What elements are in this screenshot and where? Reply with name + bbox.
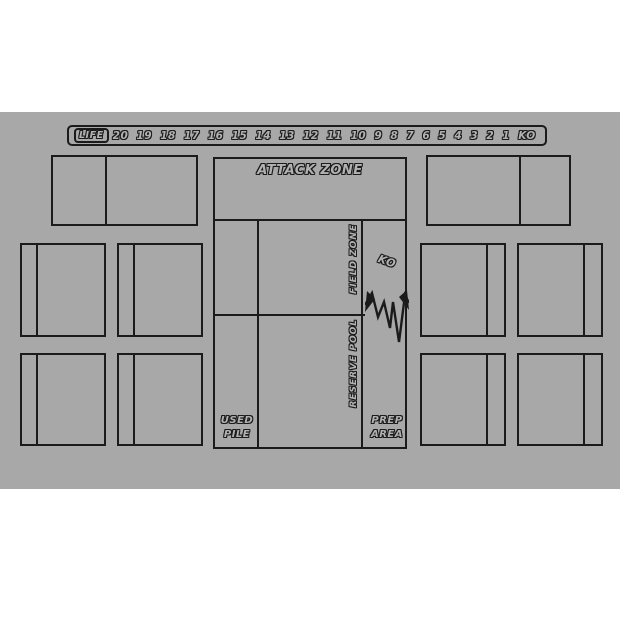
field-reserve-divider <box>215 314 365 316</box>
life-cell-14[interactable]: 14 <box>255 130 271 142</box>
life-label-text: LIFE <box>79 130 104 141</box>
life-cell-10[interactable]: 10 <box>351 130 367 142</box>
life-track: LIFE 20 19 18 17 16 15 14 13 12 11 10 9 … <box>67 125 547 146</box>
left-card-slot-4[interactable] <box>117 353 203 446</box>
life-cell-1[interactable]: 1 <box>502 130 510 142</box>
slot-strip-line <box>133 355 135 444</box>
slot-strip-line <box>36 245 38 335</box>
life-cell-12[interactable]: 12 <box>303 130 319 142</box>
left-top-slot-large[interactable] <box>105 157 196 224</box>
right-top-double-slot-row <box>428 157 569 224</box>
slot-strip-line <box>133 245 135 335</box>
attack-zone-label: ATTACK ZONE <box>257 163 362 178</box>
right-card-slot-1[interactable] <box>420 243 506 337</box>
left-top-double-slot[interactable] <box>51 155 198 226</box>
attack-zone[interactable]: ATTACK ZONE <box>215 159 405 221</box>
right-card-slot-3[interactable] <box>420 353 506 446</box>
field-zone-label: FIELD ZONE <box>349 224 359 294</box>
life-cell-6[interactable]: 6 <box>422 130 430 142</box>
life-cell-15[interactable]: 15 <box>232 130 248 142</box>
center-play-area: ATTACK ZONE FIELD ZONE RESERVE POOL KO U… <box>213 157 407 449</box>
left-card-slot-1[interactable] <box>20 243 106 337</box>
life-cell-13[interactable]: 13 <box>279 130 295 142</box>
slot-strip-line <box>486 355 488 444</box>
slot-strip-line <box>583 245 585 335</box>
prep-area-label: PREP AREA <box>365 414 409 442</box>
explosion-burst-icon <box>365 287 409 349</box>
slot-strip-line <box>36 355 38 444</box>
right-top-slot-small[interactable] <box>519 157 569 224</box>
life-cell-11[interactable]: 11 <box>327 130 343 142</box>
used-pile-line1: USED <box>215 414 259 428</box>
right-top-double-slot[interactable] <box>426 155 571 226</box>
right-card-slot-4[interactable] <box>517 353 603 446</box>
life-cell-18[interactable]: 18 <box>160 130 176 142</box>
used-pile-label: USED PILE <box>215 414 259 442</box>
prep-area-line2: AREA <box>365 428 409 442</box>
life-cell-2[interactable]: 2 <box>486 130 494 142</box>
slot-strip-line <box>486 245 488 335</box>
playmat: LIFE 20 19 18 17 16 15 14 13 12 11 10 9 … <box>0 112 620 489</box>
life-cell-17[interactable]: 17 <box>184 130 200 142</box>
left-card-slot-2[interactable] <box>117 243 203 337</box>
life-cell-20[interactable]: 20 <box>113 130 129 142</box>
used-pile-line2: PILE <box>215 428 259 442</box>
life-label: LIFE <box>74 128 109 143</box>
life-cell-7[interactable]: 7 <box>406 130 414 142</box>
slot-strip-line <box>583 355 585 444</box>
life-cell-5[interactable]: 5 <box>438 130 446 142</box>
left-top-slot-small[interactable] <box>53 157 105 224</box>
life-cell-9[interactable]: 9 <box>374 130 382 142</box>
life-cell-ko[interactable]: KO <box>518 130 535 142</box>
prep-area-line1: PREP <box>365 414 409 428</box>
left-card-slot-3[interactable] <box>20 353 106 446</box>
right-top-slot-large[interactable] <box>428 157 519 224</box>
life-cell-4[interactable]: 4 <box>454 130 462 142</box>
life-cell-16[interactable]: 16 <box>208 130 224 142</box>
life-values-row: 20 19 18 17 16 15 14 13 12 11 10 9 8 7 6… <box>109 130 540 142</box>
life-cell-19[interactable]: 19 <box>136 130 152 142</box>
playmat-page: LIFE 20 19 18 17 16 15 14 13 12 11 10 9 … <box>0 0 620 620</box>
reserve-pool-label: RESERVE POOL <box>349 319 359 408</box>
life-cell-3[interactable]: 3 <box>470 130 478 142</box>
right-card-slot-2[interactable] <box>517 243 603 337</box>
left-top-double-slot-row <box>53 157 196 224</box>
life-cell-8[interactable]: 8 <box>390 130 398 142</box>
